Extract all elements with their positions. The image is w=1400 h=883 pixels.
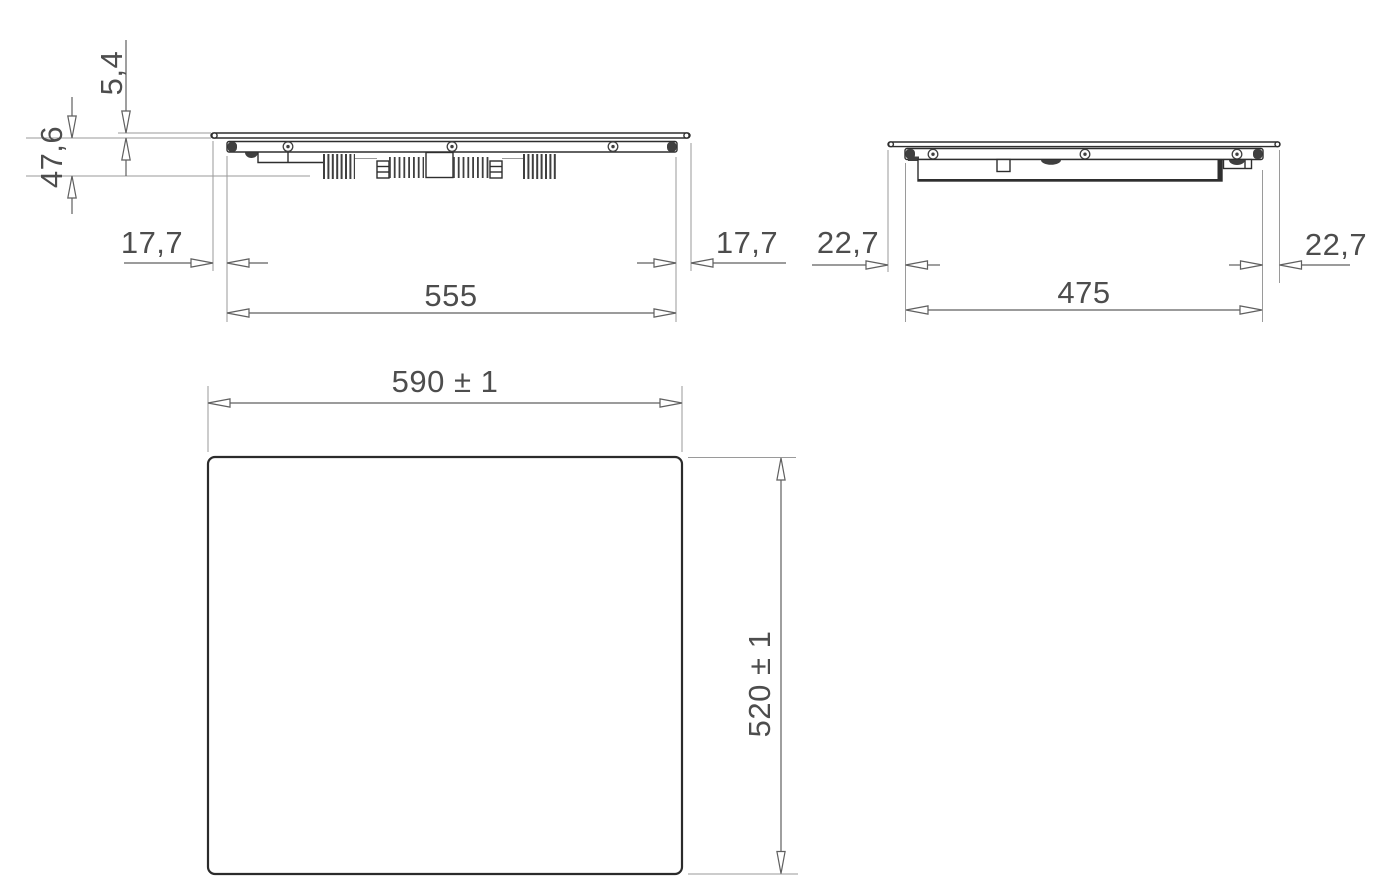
- arrowhead-right: [1240, 306, 1262, 314]
- arrowhead-left: [906, 261, 928, 269]
- top-view-glass-outline: [208, 457, 682, 874]
- front-frame-right-cap: [667, 142, 677, 152]
- arrowhead-right: [654, 309, 676, 317]
- arrowhead-right: [660, 399, 682, 407]
- dimension-drawing: 5,4 47,6 17,7 555 17,7: [0, 0, 1400, 883]
- front-frame-left-cap: [228, 142, 238, 152]
- side-glass-right-tip: [1275, 142, 1280, 147]
- screw-dot: [450, 145, 453, 148]
- arrowhead-left: [227, 309, 249, 317]
- side-glass-left-tip: [889, 142, 894, 147]
- arrowhead-left: [1280, 261, 1302, 269]
- front-left-clamp: [245, 153, 258, 159]
- arrowhead-right: [191, 259, 213, 267]
- arrowhead-down: [777, 852, 785, 874]
- side-glass-panel: [888, 142, 1280, 147]
- dim-label-glass-thickness: 5,4: [94, 51, 129, 96]
- dim-label-body-depth: 475: [1057, 275, 1110, 310]
- technical-drawing-canvas: 5,4 47,6 17,7 555 17,7: [0, 0, 1400, 883]
- heatsink-bracket-left: [377, 161, 389, 178]
- front-glass-panel: [211, 133, 690, 138]
- screw-dot: [931, 153, 934, 156]
- arrowhead-up: [777, 458, 785, 480]
- dim-label-side-offset-left: 22,7: [817, 225, 879, 260]
- arrowhead-left: [208, 399, 230, 407]
- arrowhead-right: [1241, 261, 1263, 269]
- dim-label-offset-right: 17,7: [716, 225, 778, 260]
- dim-label-under-depth: 47,6: [34, 126, 69, 188]
- front-heatsink: [323, 153, 557, 179]
- arrowhead-right: [654, 259, 676, 267]
- screw-dot: [1235, 153, 1238, 156]
- arrowhead-down: [122, 111, 130, 133]
- dim-label-offset-left: 17,7: [121, 225, 183, 260]
- arrowhead-up: [68, 176, 76, 198]
- screw-dot: [286, 145, 289, 148]
- top-view: [208, 457, 682, 874]
- heatsink-center-box: [426, 153, 453, 178]
- arrowhead-down: [68, 116, 76, 138]
- dim-label-overall-width: 590 ± 1: [392, 364, 499, 399]
- screw-dot: [611, 145, 614, 148]
- arrowhead-left: [691, 259, 713, 267]
- arrowhead-left: [227, 259, 249, 267]
- dim-label-body-width: 555: [424, 278, 477, 313]
- front-view: [211, 133, 690, 178]
- heatsink-bracket-right: [490, 161, 502, 178]
- dim-label-overall-depth: 520 ± 1: [742, 631, 777, 738]
- dim-label-side-offset-right: 22,7: [1305, 227, 1367, 262]
- side-tab: [997, 160, 1010, 172]
- arrowhead-left: [906, 306, 928, 314]
- front-glass-right-tip: [684, 133, 689, 138]
- front-left-tray: [258, 153, 323, 163]
- arrowhead-up: [122, 138, 130, 160]
- front-dimensions: 5,4 47,6 17,7 555 17,7: [26, 40, 786, 322]
- side-frame-right-cap: [1253, 149, 1263, 159]
- arrowhead-right: [866, 261, 888, 269]
- side-housing-box: [918, 160, 1222, 182]
- front-glass-left-tip: [212, 133, 217, 138]
- side-view: [888, 142, 1280, 181]
- screw-dot: [1083, 153, 1086, 156]
